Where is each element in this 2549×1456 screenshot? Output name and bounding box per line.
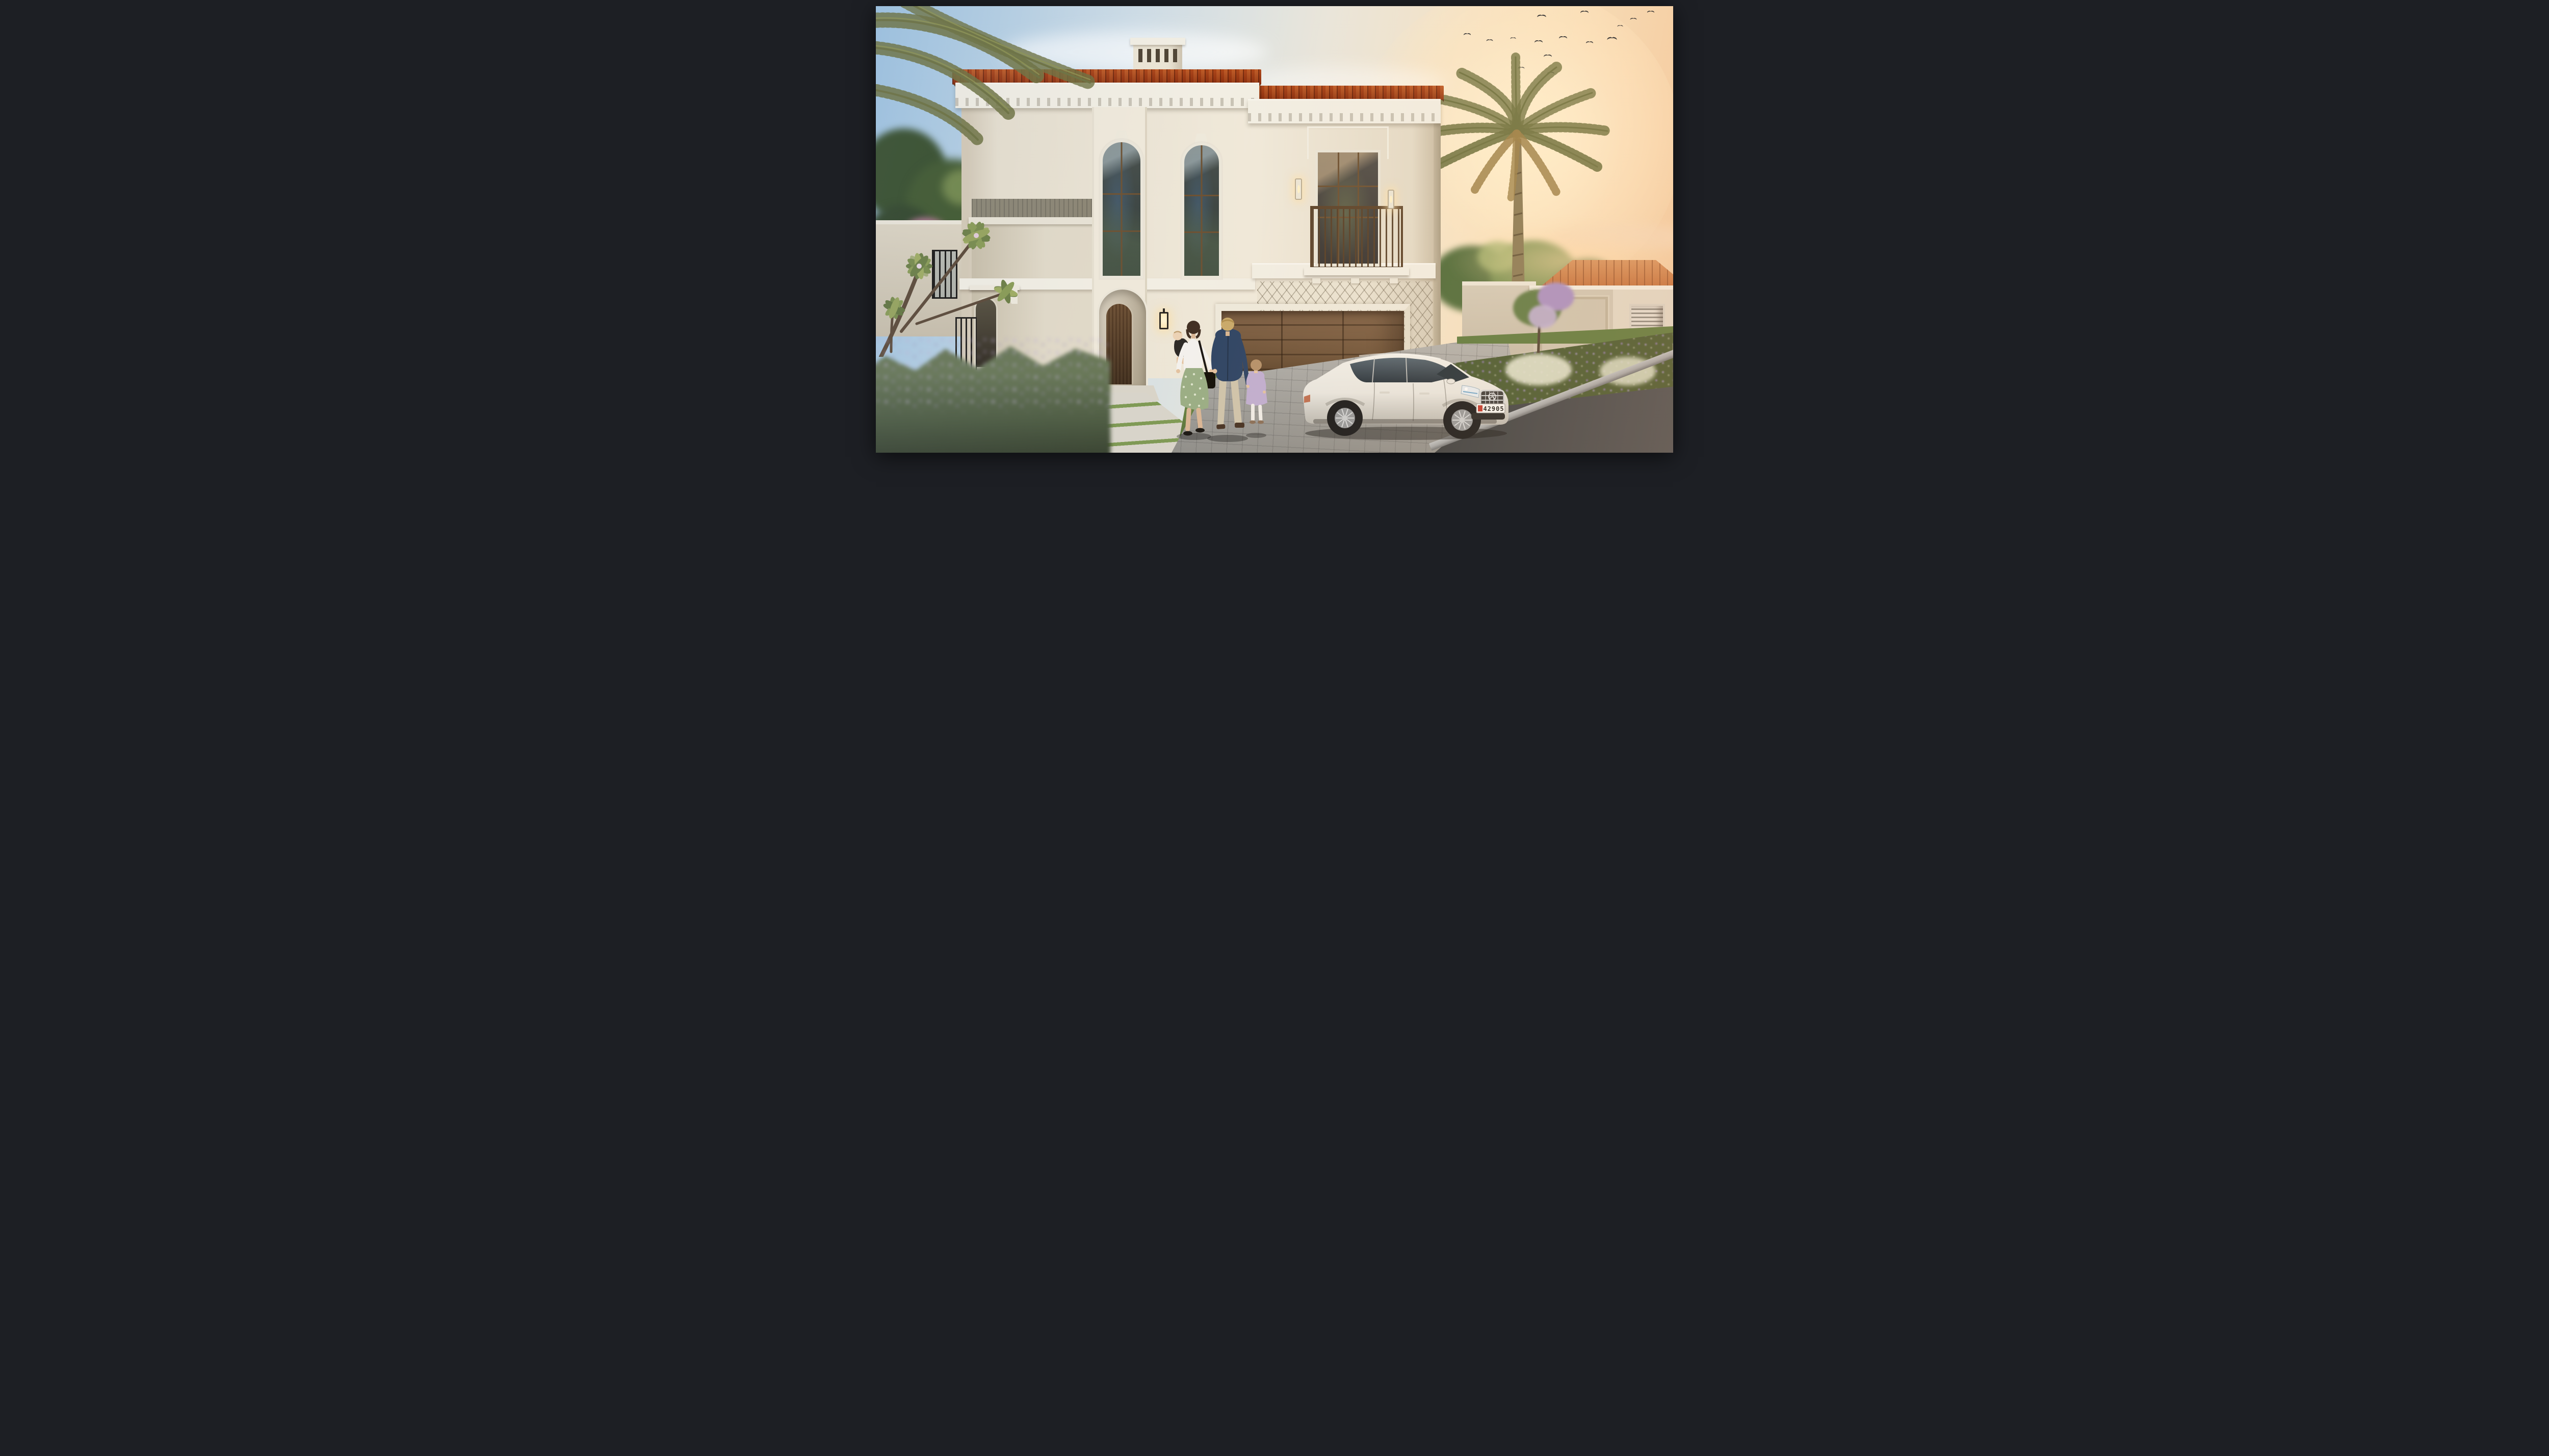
window-muntin bbox=[1184, 195, 1219, 196]
frangipani-tree bbox=[876, 204, 1044, 357]
corbel bbox=[1351, 277, 1359, 283]
bird-icon bbox=[1580, 9, 1589, 13]
corbel bbox=[1312, 277, 1320, 283]
front-intake bbox=[1471, 413, 1505, 420]
plate-emblem bbox=[1478, 405, 1482, 411]
front-wheel bbox=[1443, 401, 1481, 439]
bird-icon bbox=[1537, 13, 1546, 18]
license-plate: 42905 bbox=[1476, 404, 1505, 413]
door-handle bbox=[1380, 392, 1390, 394]
toddler bbox=[1246, 359, 1267, 424]
door-handle bbox=[1419, 393, 1429, 395]
balcony-railing bbox=[1310, 206, 1403, 269]
dentil-cornice bbox=[1248, 99, 1441, 123]
luxury-sedan: 42905 bbox=[1298, 332, 1510, 440]
mother bbox=[1176, 321, 1215, 436]
plate-number: 42905 bbox=[1483, 405, 1504, 412]
window-muntin bbox=[1103, 230, 1140, 232]
balcony-ledge bbox=[1304, 267, 1409, 275]
bird-icon bbox=[1464, 32, 1471, 35]
rear-wheel bbox=[1327, 400, 1363, 436]
chimney-vents bbox=[1138, 49, 1177, 62]
flowering-bush bbox=[1505, 354, 1572, 385]
entry-lantern bbox=[1159, 312, 1168, 329]
bird-icon bbox=[1647, 9, 1654, 13]
window-muntin bbox=[1121, 142, 1123, 276]
lavender-foreground bbox=[876, 336, 1110, 453]
overhanging-palm-fronds bbox=[876, 6, 1115, 159]
family-group bbox=[1171, 308, 1278, 446]
lavender-blooms bbox=[876, 336, 1110, 412]
side-mirror bbox=[1447, 379, 1455, 384]
wall-sconce bbox=[1388, 190, 1394, 209]
villa-rendering: 42905 bbox=[876, 6, 1673, 453]
arched-window bbox=[1100, 140, 1143, 278]
window-muntin bbox=[1184, 231, 1219, 233]
arched-window bbox=[1182, 143, 1221, 278]
window-muntin bbox=[1103, 193, 1140, 195]
corbel bbox=[1390, 277, 1398, 283]
window-muntin bbox=[1318, 186, 1378, 187]
wall-sconce bbox=[1295, 178, 1302, 200]
chimney-cap bbox=[1130, 38, 1185, 45]
bird-icon bbox=[1617, 24, 1623, 27]
bird-icon bbox=[1630, 17, 1637, 20]
terracotta-roof bbox=[1245, 86, 1444, 100]
purple-blossoms bbox=[1528, 305, 1557, 328]
father bbox=[1213, 318, 1251, 429]
window-muntin bbox=[1201, 145, 1203, 276]
